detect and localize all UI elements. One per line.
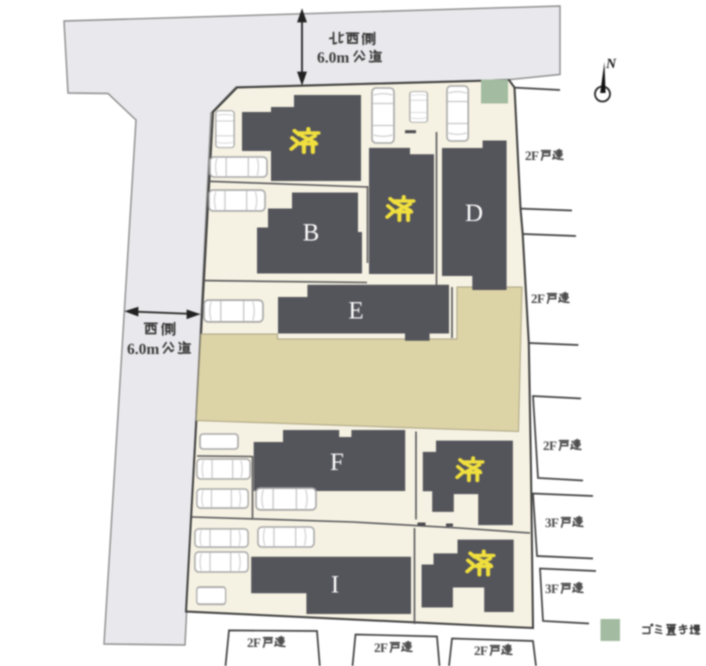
svg-text:N: N [605, 57, 617, 72]
svg-text:2F: 2F [531, 291, 545, 306]
svg-text:2F: 2F [543, 438, 557, 453]
svg-text:B: B [303, 220, 320, 247]
svg-text:2F: 2F [474, 643, 488, 658]
svg-text:F: F [330, 449, 344, 476]
svg-text:6.0m: 6.0m [127, 341, 159, 358]
svg-text:3F: 3F [545, 515, 559, 530]
svg-text:I: I [331, 572, 339, 599]
svg-text:6.0m: 6.0m [317, 50, 349, 67]
svg-text:2F: 2F [525, 148, 539, 163]
svg-text:E: E [348, 298, 363, 325]
svg-text:2F: 2F [374, 640, 388, 655]
svg-text:3F: 3F [545, 581, 559, 596]
svg-text:D: D [465, 200, 483, 227]
svg-text:2F: 2F [247, 635, 261, 650]
